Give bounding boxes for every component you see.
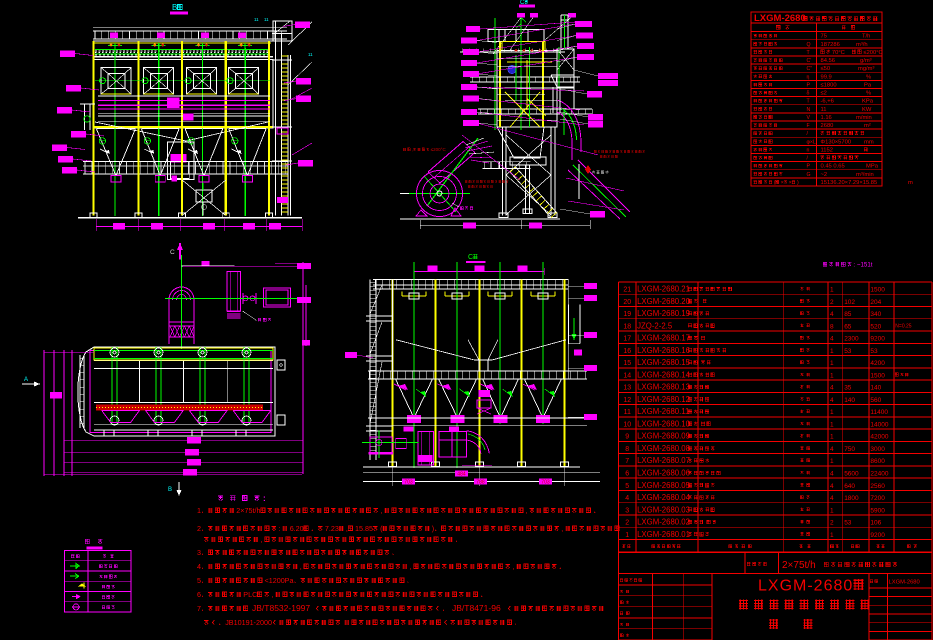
svg-text:): ) [432,524,434,533]
svg-text:LXGM-2680.14: LXGM-2680.14 [637,370,691,379]
svg-text:11: 11 [821,107,827,113]
svg-text:mg/m³: mg/m³ [858,66,874,72]
svg-text:21: 21 [623,287,631,294]
svg-text:LXGM-2680.09: LXGM-2680.09 [637,432,690,441]
svg-text:MPa: MPa [866,164,879,170]
svg-text:5900: 5900 [870,507,885,514]
svg-text:,: , [410,562,412,571]
svg-text:LXGM-2680.07: LXGM-2680.07 [637,456,690,465]
svg-text:8: 8 [830,323,834,330]
svg-text:JB/T8471-96: JB/T8471-96 [452,603,501,613]
svg-text:LXGM-2680.06: LXGM-2680.06 [637,468,690,477]
svg-text:/: / [807,156,809,162]
svg-text:LXGM-2680.04: LXGM-2680.04 [637,493,691,502]
svg-text:1: 1 [830,421,834,428]
svg-text:T: T [807,50,811,56]
svg-text:8: 8 [625,446,629,453]
svg-text:LXGM-2680.20: LXGM-2680.20 [637,297,691,306]
svg-text:9200: 9200 [870,336,885,343]
svg-text:12: 12 [623,397,631,404]
svg-text:560: 560 [870,397,881,404]
svg-text:4: 4 [197,562,201,571]
svg-text:2: 2 [197,524,201,533]
svg-text:: ~151t: : ~151t [853,262,872,269]
svg-text:LXGM-2680.11: LXGM-2680.11 [637,407,689,416]
svg-text:LXGM-2680.12: LXGM-2680.12 [637,395,690,404]
svg-text:0.45 0.65: 0.45 0.65 [821,164,845,170]
svg-text:4: 4 [830,470,834,477]
svg-text:≤200°C: ≤200°C [431,147,447,152]
svg-text:7: 7 [625,458,629,465]
svg-text:1800: 1800 [844,495,859,502]
svg-text:17: 17 [623,336,631,343]
svg-text:703: 703 [404,480,413,486]
svg-text:4: 4 [830,385,834,392]
svg-text:85: 85 [844,311,852,318]
svg-text:,: , [561,524,563,533]
svg-text:1500: 1500 [870,372,885,379]
svg-text:LXGM-2680: LXGM-2680 [889,580,920,586]
svg-text:22400: 22400 [870,470,888,477]
svg-text:C″: C″ [807,66,813,72]
svg-text:6: 6 [197,590,201,599]
svg-text:φ×L: φ×L [807,139,816,145]
svg-text:N: N [807,107,811,113]
svg-text:LXGM-2680.17: LXGM-2680.17 [637,334,690,343]
svg-text:≤50: ≤50 [821,66,831,72]
svg-text:4200: 4200 [870,360,885,367]
svg-text:≤1800: ≤1800 [821,82,837,88]
svg-text:m²: m² [864,123,871,129]
svg-text:mm: mm [864,139,874,145]
svg-text:8600: 8600 [870,458,885,465]
svg-text:75: 75 [821,34,827,40]
svg-text:m³/h: m³/h [856,42,868,48]
svg-text:15: 15 [623,360,631,367]
svg-text:1152: 1152 [821,147,833,153]
svg-text:1: 1 [830,348,834,355]
svg-text:×: × [781,180,784,186]
svg-text:LXGM-2680.02: LXGM-2680.02 [637,518,690,527]
svg-text:,: , [272,590,274,599]
svg-text:35: 35 [844,385,852,392]
svg-text:4: 4 [830,495,834,502]
svg-text:): ) [797,180,799,186]
svg-text:5600: 5600 [844,470,859,477]
svg-text:187286: 187286 [821,42,840,48]
svg-text:84.56: 84.56 [821,58,836,64]
svg-text:LXGM-2680.08: LXGM-2680.08 [637,444,690,453]
svg-text:1: 1 [830,507,834,514]
svg-text:KPa: KPa [862,99,874,105]
svg-text:7: 7 [197,604,201,613]
svg-text:15.85: 15.85 [355,524,373,533]
svg-text:3: 3 [197,548,201,557]
svg-text:4: 4 [830,336,834,343]
svg-text:53: 53 [844,348,852,355]
svg-text:1: 1 [625,532,629,539]
svg-text:1: 1 [830,458,834,465]
svg-text:99.9: 99.9 [821,74,832,80]
svg-text:6.20: 6.20 [290,524,304,533]
svg-text:m/min: m/min [856,115,872,121]
svg-text:204: 204 [870,299,881,306]
svg-text:B: B [172,3,177,12]
svg-text:LXGM-2680.21: LXGM-2680.21 [637,285,690,294]
svg-text:P: P [807,164,811,170]
svg-text::: : [263,494,267,503]
svg-text:T/h: T/h [862,34,870,40]
svg-text:LXGM-2680.15: LXGM-2680.15 [637,358,691,367]
svg-text:N=0.25: N=0.25 [895,323,911,329]
svg-text:53: 53 [844,520,852,527]
svg-text:18: 18 [623,323,631,330]
svg-text:C: C [468,254,473,261]
svg-text:×: × [789,180,792,186]
svg-text:703: 703 [541,480,550,486]
svg-text:106: 106 [870,520,881,527]
svg-text:11: 11 [254,17,259,22]
svg-text:LXGM-2680.05: LXGM-2680.05 [637,481,691,490]
svg-text:≤2: ≤2 [821,91,827,97]
svg-text:~2: ~2 [821,172,828,178]
svg-text:1: 1 [830,287,834,294]
svg-text:,: , [381,506,383,515]
svg-text:1.16: 1.16 [821,115,832,121]
svg-text:4: 4 [830,311,834,318]
svg-text:788: 788 [476,480,485,486]
svg-text:2300: 2300 [844,336,859,343]
svg-text:520: 520 [870,323,881,330]
svg-text:14: 14 [623,372,631,379]
svg-text:1: 1 [830,360,834,367]
svg-text:340: 340 [870,311,881,318]
svg-text:1: 1 [197,506,201,515]
svg-text:PLC: PLC [243,590,257,599]
svg-text:LXGM-2680.19: LXGM-2680.19 [637,309,690,318]
svg-text:C′: C′ [807,58,812,64]
svg-text:,: , [260,535,262,544]
svg-text:,: , [512,562,514,571]
svg-text:/: / [807,131,809,137]
svg-text:11: 11 [308,52,313,57]
svg-text:δ: δ [807,91,810,97]
svg-text:<1200Pa: <1200Pa [265,576,294,585]
svg-text:11400: 11400 [870,409,888,416]
svg-text:-6,+6: -6,+6 [821,99,834,105]
svg-text:11: 11 [264,17,269,22]
svg-text:g/m³: g/m³ [860,58,872,64]
svg-text:11: 11 [624,409,631,416]
svg-text:1500: 1500 [870,287,885,294]
svg-text:η: η [807,74,810,80]
svg-text:,: , [300,562,302,571]
svg-text:2680: 2680 [821,123,834,129]
svg-text:2: 2 [830,520,834,527]
svg-text:7.23: 7.23 [325,524,339,533]
svg-text:15136.20×7.29×15.85: 15136.20×7.29×15.85 [821,180,878,186]
svg-text:m³/min: m³/min [856,172,874,178]
svg-text:140: 140 [870,385,881,392]
svg-text:LXGM-2680.16: LXGM-2680.16 [637,346,690,355]
svg-text:(: ( [380,524,383,533]
svg-text:484: 484 [457,472,466,478]
svg-text:4: 4 [830,446,834,453]
svg-text:Q: Q [807,42,811,48]
svg-text:JB10191-2000: JB10191-2000 [225,618,272,627]
svg-text:LXGM-2680.01: LXGM-2680.01 [637,530,690,539]
svg-text:2×75t/h: 2×75t/h [236,506,260,515]
svg-text:LXGM-2680.13: LXGM-2680.13 [637,383,690,392]
svg-text:C: C [170,249,175,256]
svg-text:4: 4 [830,397,834,404]
svg-text:,: , [346,524,348,533]
svg-text:JZQ-2-2.5: JZQ-2-2.5 [637,321,673,330]
svg-text:9200: 9200 [870,532,885,539]
svg-text:750: 750 [844,446,855,453]
svg-text:7200: 7200 [870,495,885,502]
svg-text:5: 5 [625,483,629,490]
svg-text:%: % [866,74,871,80]
svg-text:F: F [807,123,810,129]
svg-text:,: , [526,506,528,515]
svg-text:,: , [412,147,413,152]
svg-text:G: G [807,172,811,178]
svg-text:%: % [866,91,871,97]
svg-text:2: 2 [830,299,834,306]
svg-text:T: T [807,99,811,105]
svg-text:KW: KW [862,107,872,113]
svg-text:70°C: 70°C [832,50,845,56]
svg-text:10: 10 [623,421,631,428]
svg-text:20: 20 [623,299,631,306]
svg-text:LXGM-2680.03: LXGM-2680.03 [637,505,690,514]
svg-text:4: 4 [830,483,834,490]
svg-text:A: A [24,377,28,383]
svg-text:1: 1 [830,434,834,441]
svg-text::: : [279,524,281,533]
svg-text:n: n [807,147,810,153]
svg-text:5: 5 [197,576,201,585]
svg-text:Φ130×5700: Φ130×5700 [821,139,852,145]
svg-text:m: m [908,180,913,186]
svg-text:V: V [807,115,811,121]
svg-text:1: 1 [830,372,834,379]
svg-text:53: 53 [870,348,878,355]
svg-text:42000: 42000 [870,434,888,441]
svg-text:16: 16 [623,348,631,355]
svg-text:Pa: Pa [864,82,872,88]
svg-text:LXGM-2680: LXGM-2680 [758,578,853,595]
svg-text:640: 640 [844,483,855,490]
svg-text:2×75t/h: 2×75t/h [782,560,816,571]
svg-text:LXGM-2680: LXGM-2680 [754,13,806,24]
svg-text:9: 9 [625,434,629,441]
svg-text:102: 102 [844,299,855,306]
svg-text:1: 1 [830,532,834,539]
svg-text:JB/T8532-1997: JB/T8532-1997 [252,603,310,613]
svg-text:13: 13 [623,385,631,392]
svg-text:65: 65 [844,323,852,330]
svg-text:21: 21 [347,354,352,359]
svg-text:6: 6 [625,470,629,477]
svg-text:3: 3 [625,507,629,514]
svg-text:19: 19 [623,311,631,318]
svg-text:2560: 2560 [870,483,885,490]
svg-text:14000: 14000 [870,421,888,428]
svg-text:3000: 3000 [870,446,885,453]
svg-text:1: 1 [830,409,834,416]
svg-text:P: P [807,82,811,88]
svg-text:4: 4 [625,495,629,502]
svg-text:B: B [168,487,172,493]
svg-text:LXGM-2680.10: LXGM-2680.10 [637,419,691,428]
svg-text:140: 140 [844,397,855,404]
svg-text:2: 2 [625,520,629,527]
svg-text:≤200°C: ≤200°C [863,50,882,56]
